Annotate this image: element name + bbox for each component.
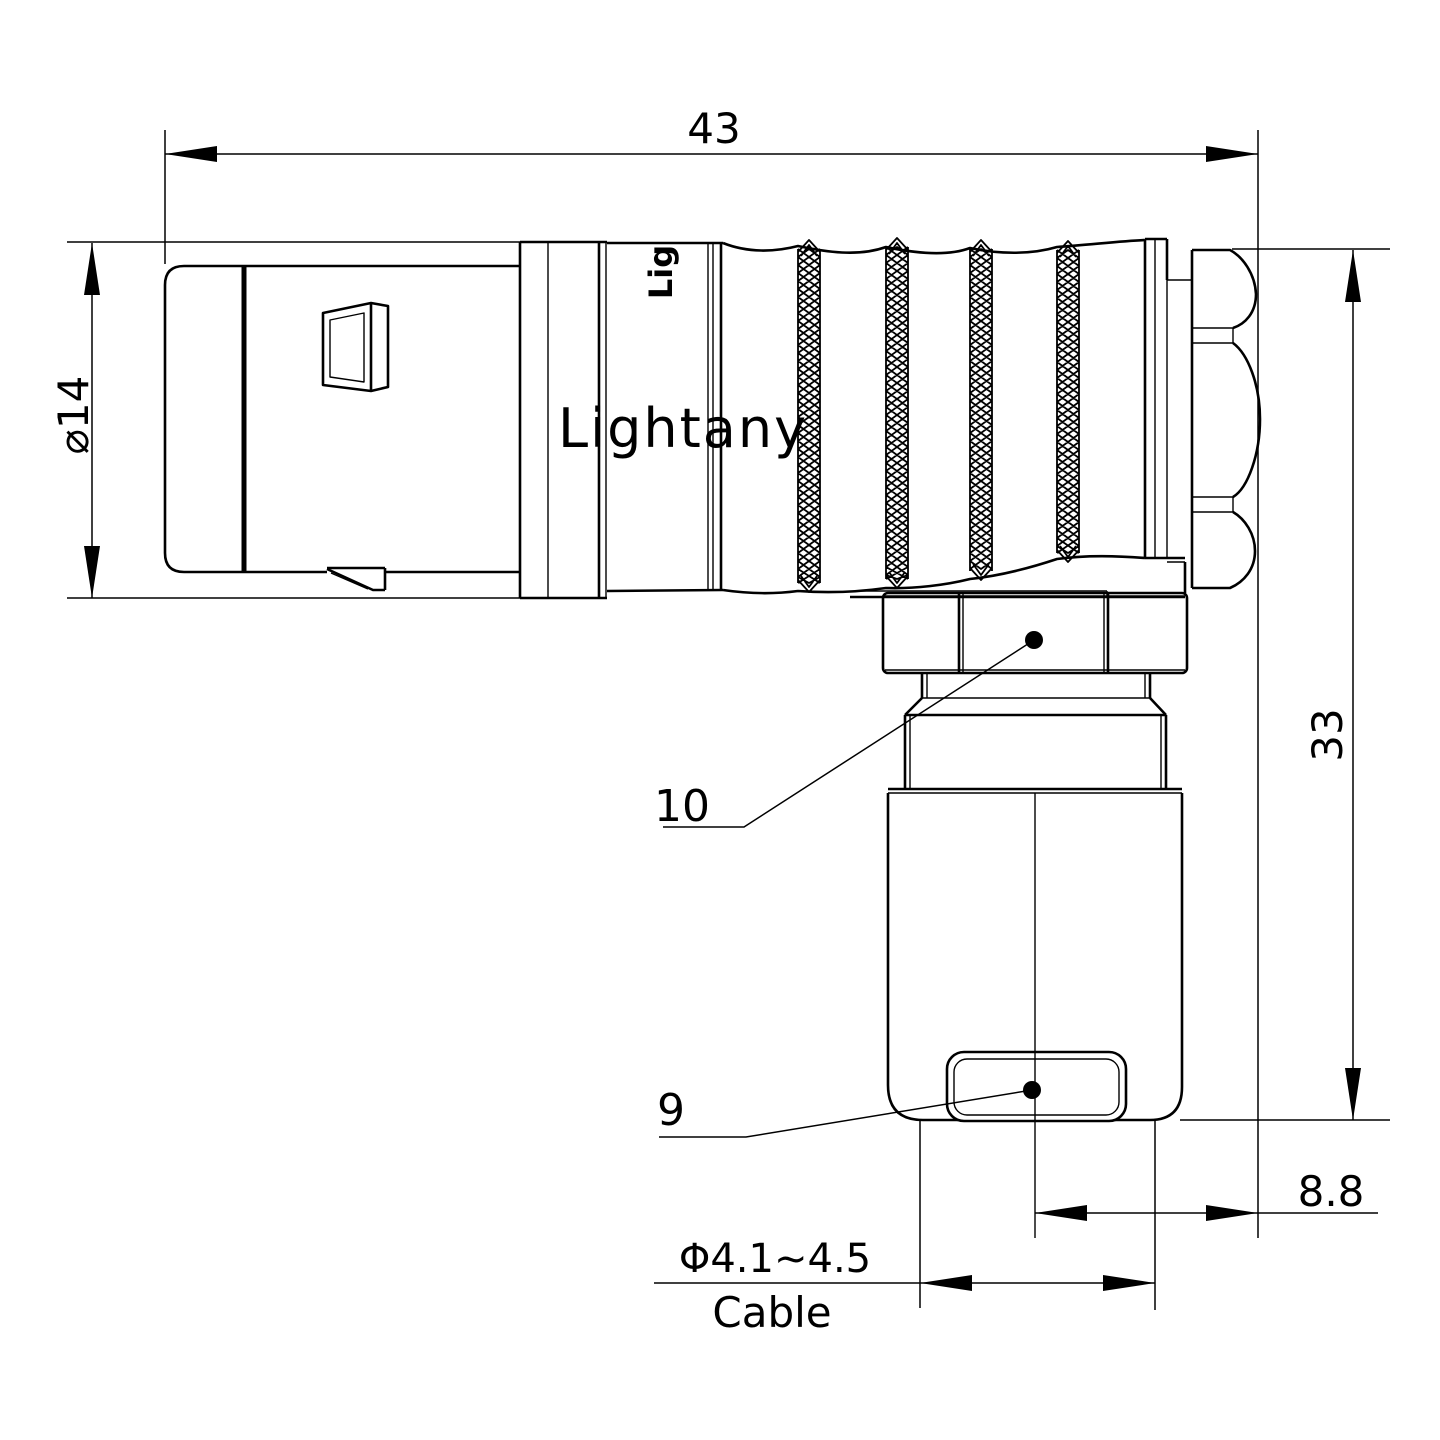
dim-cable-diameter-label: Φ4.1~4.5: [679, 1236, 871, 1282]
front-shell: [165, 266, 520, 590]
rear-rim: [1145, 239, 1192, 593]
dim-height-label: 33: [1303, 708, 1352, 761]
dimension-front-diameter: ⌀14: [49, 242, 520, 598]
latch-wedge: [327, 568, 385, 590]
connector-technical-drawing: Lightany Lig: [0, 0, 1440, 1440]
watermark: Lightany: [558, 397, 808, 460]
dimension-cable: Φ4.1~4.5 Cable: [654, 1120, 1155, 1337]
scalloped-back-nut: [1192, 250, 1260, 588]
dim-nut-to-edge-label: 8.8: [1298, 1167, 1365, 1216]
cable-label: Cable: [712, 1288, 831, 1337]
part-label-cable-clamp: 9: [657, 1085, 685, 1136]
washer-and-tube: [905, 673, 1166, 789]
dimension-nut-to-edge: 8.8: [1035, 1167, 1378, 1221]
dim-overall-length-label: 43: [687, 104, 740, 153]
latch-window: [323, 303, 388, 391]
part-label-coupling-nut: 10: [654, 781, 710, 832]
drawing-page: Lightany Lig: [0, 0, 1440, 1440]
dimension-height: 33: [1180, 249, 1390, 1120]
dim-front-diameter-label: ⌀14: [49, 376, 98, 455]
logo-engraving: Lig: [642, 245, 680, 299]
leader-dot-cable-clamp: [1023, 1081, 1041, 1099]
knurl-bands: [798, 238, 1079, 592]
leader-coupling-nut: 10: [654, 631, 1043, 832]
leader-dot-coupling-nut: [1025, 631, 1043, 649]
